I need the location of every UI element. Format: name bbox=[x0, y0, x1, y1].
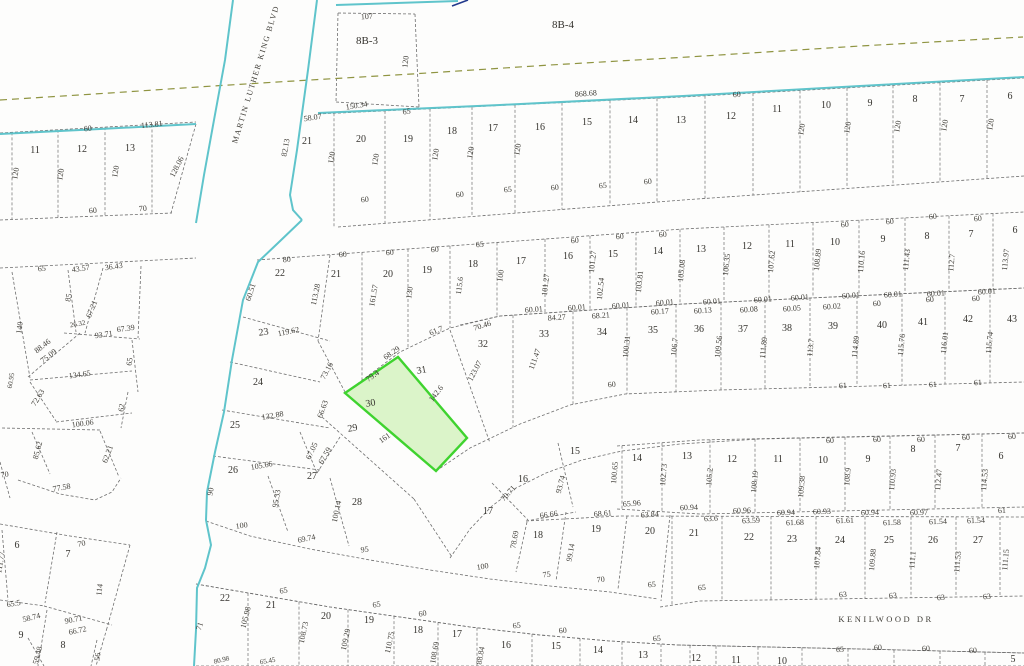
lot-number-label: 8 bbox=[913, 94, 918, 105]
dimension-label: 114.53 bbox=[979, 469, 990, 491]
lot-number-label: 16 bbox=[501, 640, 511, 651]
dimension-label: 63 bbox=[937, 593, 945, 602]
dimension-label: 85.62 bbox=[31, 440, 44, 460]
dimension-label: 63 bbox=[889, 591, 897, 600]
dimension-label: 106.7 bbox=[669, 337, 680, 356]
dimension-label: 109.29 bbox=[339, 628, 352, 651]
dimension-label: 56 bbox=[93, 652, 103, 661]
lot-number-label: 22 bbox=[275, 268, 285, 279]
dimension-label: 61 bbox=[883, 381, 891, 390]
dimension-label: 59.48 bbox=[31, 645, 44, 665]
dimension-label: 73.16 bbox=[319, 361, 335, 381]
parcel-line bbox=[618, 516, 627, 589]
dimension-label: 115.6 bbox=[454, 276, 465, 295]
dimension-label: 108.69 bbox=[428, 641, 441, 664]
dimension-label: 113.97 bbox=[1000, 248, 1011, 271]
dimension-label: 112.47 bbox=[933, 469, 944, 491]
dimension-label: 60.01 bbox=[754, 294, 773, 304]
dimension-label: 105.98 bbox=[239, 606, 253, 630]
dimension-label: 106.35 bbox=[721, 253, 732, 276]
water-line bbox=[196, 0, 233, 223]
parcel-line bbox=[0, 213, 172, 220]
dimension-label: 60 bbox=[840, 220, 849, 230]
lot-number-label: 22 bbox=[220, 593, 230, 604]
dimension-label: 60.01 bbox=[611, 300, 630, 311]
dimension-label: 110.16 bbox=[856, 250, 867, 273]
dimension-label: 66.63 bbox=[315, 399, 330, 419]
dimension-label: 60.01 bbox=[567, 302, 586, 313]
water-line bbox=[318, 77, 1024, 113]
dimension-label: 65 bbox=[125, 357, 135, 366]
dimension-label: 60.13 bbox=[694, 305, 713, 315]
lot-number-label: 27 bbox=[973, 535, 983, 546]
lot-number-label: 9 bbox=[866, 454, 871, 465]
parcel-line bbox=[0, 524, 130, 545]
dimension-label: 120 bbox=[892, 120, 903, 133]
dimension-label: 70.71 bbox=[499, 484, 518, 503]
dimension-label: 66.66 bbox=[539, 509, 558, 520]
dimension-label: 66.72 bbox=[68, 624, 87, 637]
lot-number-label: 37 bbox=[738, 324, 748, 335]
dimension-label: 60 bbox=[962, 433, 970, 442]
lot-number-label: 7 bbox=[960, 94, 965, 105]
dimension-label: 108.19 bbox=[749, 470, 760, 493]
parcel-line bbox=[556, 512, 566, 581]
lot-number-label: 13 bbox=[125, 143, 135, 154]
dimension-label: 60 bbox=[926, 295, 935, 305]
water-line bbox=[290, 0, 317, 220]
dimension-label: 60.94 bbox=[777, 508, 795, 518]
dimension-label: 60 bbox=[360, 195, 369, 205]
dimension-label: 120 bbox=[842, 121, 853, 134]
road-label: KENILWOOD DR bbox=[838, 614, 933, 624]
lot-number-label: 30 bbox=[365, 397, 377, 410]
lot-number-label: 8B-3 bbox=[356, 35, 379, 47]
lot-number-label: 15 bbox=[608, 249, 618, 260]
lot-number-label: 39 bbox=[828, 321, 838, 332]
dimension-label: 68.61 bbox=[593, 508, 612, 519]
dimension-label: 103.81 bbox=[634, 270, 645, 293]
lot-number-label: 13 bbox=[682, 451, 692, 462]
parcel-line bbox=[230, 362, 320, 382]
dimension-label: 60.01 bbox=[791, 292, 810, 302]
dimension-label: 95 bbox=[360, 545, 369, 555]
dimension-label: 142.6 bbox=[427, 384, 445, 404]
lot-number-label: 12 bbox=[742, 241, 752, 252]
parcel-line bbox=[336, 13, 338, 102]
dimension-label: 70.46 bbox=[472, 319, 492, 333]
lot-number-label: 15 bbox=[582, 117, 592, 128]
dimension-label: 100 bbox=[235, 520, 248, 531]
lot-number-label: 12 bbox=[77, 144, 87, 155]
dimension-label: 120 bbox=[326, 151, 337, 164]
lot-number-label: 14 bbox=[593, 645, 603, 656]
dimension-label: 60 bbox=[826, 436, 834, 445]
dimension-label: 115.76 bbox=[896, 333, 907, 356]
dimension-label: 70 bbox=[0, 470, 9, 480]
dimension-label: 109.88 bbox=[867, 548, 878, 571]
lot-number-label: 11 bbox=[731, 655, 741, 666]
water-line bbox=[0, 124, 196, 134]
parcel-map-canvas: MARTIN LUTHER KING BLVDKENILWOOD DR8B-38… bbox=[0, 0, 1024, 666]
lot-number-label: 19 bbox=[422, 265, 432, 276]
dimension-label: 150.34 bbox=[345, 99, 368, 111]
lot-number-label: 8 bbox=[61, 640, 66, 651]
dimension-label: 63.6 bbox=[704, 514, 718, 523]
dimension-label: 61.61 bbox=[836, 516, 854, 526]
dimension-label: 114.89 bbox=[850, 335, 861, 358]
lot-number-label: 10 bbox=[830, 237, 840, 248]
dimension-label: 78.69 bbox=[509, 530, 521, 549]
dimension-label: 60 bbox=[385, 248, 394, 258]
lot-number-label: 9 bbox=[881, 234, 886, 245]
lot-number-label: 40 bbox=[877, 320, 887, 331]
dimension-label: 60.94 bbox=[861, 508, 879, 518]
dimension-label: 100 bbox=[495, 269, 506, 282]
lot-number-label: 22 bbox=[744, 532, 754, 543]
dimension-label: 69.74 bbox=[297, 532, 316, 545]
dimension-label: 100 bbox=[476, 561, 489, 572]
dimension-label: 119.62 bbox=[277, 325, 300, 338]
dimension-label: 63 bbox=[983, 592, 991, 601]
lot-number-label: 11 bbox=[773, 454, 783, 465]
dimension-label: 80.98 bbox=[213, 654, 231, 666]
parcel-line bbox=[196, 584, 678, 645]
dimension-label: 120 bbox=[465, 146, 476, 159]
dimension-label: 61 bbox=[839, 381, 847, 390]
dimension-label: 60 bbox=[917, 435, 925, 444]
lot-number-label: 15 bbox=[570, 446, 580, 457]
dimension-label: 60 bbox=[928, 212, 937, 222]
lot-number-label: 16 bbox=[535, 122, 545, 133]
lot-number-label: 21 bbox=[266, 600, 276, 611]
dimension-label: 60 bbox=[732, 90, 741, 100]
dimension-label: 75 bbox=[542, 570, 551, 580]
dimension-label: 65 bbox=[698, 583, 706, 592]
dimension-label: 93.74 bbox=[554, 474, 567, 494]
lot-number-label: 19 bbox=[591, 524, 601, 535]
lot-number-label: 17 bbox=[516, 256, 526, 267]
lot-number-label: 16 bbox=[518, 474, 528, 485]
dimension-label: 60 bbox=[89, 206, 98, 216]
dimension-label: 130 bbox=[404, 286, 415, 299]
parcel-line bbox=[56, 413, 132, 422]
lot-number-label: 20 bbox=[645, 526, 655, 537]
dimension-label: 112.7 bbox=[946, 253, 957, 272]
dimension-label: 77.58 bbox=[52, 482, 71, 494]
dimension-label: 60.01 bbox=[884, 289, 903, 299]
dimension-label: 60 bbox=[973, 214, 982, 224]
lot-number-label: 7 bbox=[969, 229, 974, 240]
dimension-label: 60 bbox=[972, 294, 981, 304]
dimension-label: 61 bbox=[974, 378, 982, 387]
parcel-line bbox=[107, 545, 130, 628]
dimension-label: 70 bbox=[77, 538, 87, 548]
dimension-label: 88.84 bbox=[475, 646, 487, 665]
lot-number-label: 8 bbox=[911, 444, 916, 455]
lot-number-label: 31 bbox=[416, 364, 428, 377]
dimension-label: 60 bbox=[658, 230, 667, 240]
lot-number-label: 28 bbox=[352, 497, 362, 508]
dimension-label: 95.33 bbox=[271, 489, 283, 508]
lot-number-label: 5 bbox=[1011, 654, 1016, 665]
dimension-label: 115.74 bbox=[984, 331, 995, 354]
lot-number-label: 23 bbox=[787, 534, 797, 545]
dimension-label: 62 bbox=[117, 403, 127, 412]
lot-number-label: 25 bbox=[230, 420, 240, 431]
dimension-label: 108.89 bbox=[812, 248, 823, 271]
dimension-label: 70 bbox=[596, 575, 605, 585]
parcel-line bbox=[2, 428, 100, 430]
lot-number-label: 6 bbox=[1013, 225, 1018, 236]
lot-number-label: 17 bbox=[452, 629, 462, 640]
dimension-label: 108.9 bbox=[842, 467, 853, 486]
dimension-label: 65.5 bbox=[6, 598, 21, 609]
lot-number-label: 10 bbox=[777, 656, 787, 666]
dimension-label: 80 bbox=[282, 255, 291, 265]
lot-number-label: 34 bbox=[597, 327, 607, 338]
dimension-label: 70 bbox=[139, 204, 148, 214]
dimension-label: 26.32 bbox=[69, 319, 86, 330]
dimension-label: 63.59 bbox=[742, 516, 760, 526]
dimension-label: 60 bbox=[83, 124, 92, 134]
dimension-label: 84.27 bbox=[547, 312, 566, 323]
lot-number-label: 24 bbox=[253, 377, 263, 388]
lot-number-label: 38 bbox=[782, 323, 792, 334]
dimension-label: 60 bbox=[874, 643, 882, 652]
lot-number-label: 12 bbox=[727, 454, 737, 465]
lot-number-label: 14 bbox=[632, 453, 642, 464]
lot-number-label: 12 bbox=[691, 653, 701, 664]
dimension-label: 61.58 bbox=[883, 518, 901, 528]
lot-number-label: 11 bbox=[772, 104, 782, 115]
lot-number-label: 13 bbox=[638, 650, 648, 661]
lot-number-label: 26 bbox=[928, 535, 938, 546]
dimension-label: 67.21 bbox=[84, 299, 99, 319]
dimension-label: 60 bbox=[1008, 432, 1016, 441]
lot-number-label: 17 bbox=[483, 506, 493, 517]
lot-number-label: 7 bbox=[66, 549, 71, 560]
lot-number-label: 26 bbox=[228, 465, 238, 476]
lot-number-label: 14 bbox=[628, 115, 638, 126]
lot-number-label: 41 bbox=[918, 317, 928, 328]
dimension-label: 61.54 bbox=[967, 516, 985, 526]
dimension-label: 114 bbox=[94, 583, 104, 596]
dimension-label: 61.54 bbox=[929, 517, 947, 527]
dimension-label: 63 bbox=[839, 590, 847, 599]
lot-number-label: 18 bbox=[413, 625, 423, 636]
dimension-label: 60.02 bbox=[823, 301, 842, 311]
dimension-label: 60 bbox=[873, 435, 881, 444]
dimension-label: 60.96 bbox=[733, 506, 751, 516]
lot-number-label: 8B-4 bbox=[552, 19, 575, 31]
lot-number-label: 18 bbox=[447, 126, 457, 137]
dimension-label: 99.14 bbox=[565, 543, 577, 562]
dimension-label: 60 bbox=[615, 232, 624, 242]
lot-number-label: 35 bbox=[648, 325, 658, 336]
parcel-line bbox=[318, 255, 330, 341]
water-line bbox=[336, 1, 458, 5]
dimension-label: 60 bbox=[643, 177, 652, 187]
dimension-label: 120 bbox=[10, 167, 21, 180]
dimension-label: 113.81 bbox=[140, 119, 163, 130]
dimension-label: 120 bbox=[370, 153, 381, 166]
parcel-line bbox=[0, 122, 196, 133]
dimension-label: 60.05 bbox=[783, 303, 802, 313]
dimension-label: 116.01 bbox=[939, 331, 950, 354]
dimension-label: 109.56 bbox=[713, 335, 724, 358]
dimension-label: 161.57 bbox=[367, 284, 380, 307]
dimension-label: 65.45 bbox=[259, 656, 276, 666]
dimension-label: 65.96 bbox=[622, 498, 641, 509]
dimension-label: 43.57 bbox=[71, 263, 90, 274]
lot-number-label: 11 bbox=[785, 239, 795, 250]
dimension-label: 60 bbox=[430, 245, 439, 255]
lot-number-label: 10 bbox=[821, 100, 831, 111]
lot-number-label: 18 bbox=[533, 530, 543, 541]
lot-number-label: 20 bbox=[356, 134, 366, 145]
dimension-label: 60 bbox=[607, 380, 616, 390]
dimension-label: 85 bbox=[63, 293, 73, 302]
dimension-label: 100.65 bbox=[609, 461, 620, 484]
dimension-label: 111.1 bbox=[907, 551, 917, 569]
dimension-label: 105.08 bbox=[676, 259, 687, 282]
dimension-label: 71 bbox=[194, 621, 205, 631]
dimension-label: 65 bbox=[503, 185, 512, 195]
dimension-label: 100.31 bbox=[621, 335, 632, 358]
lot-number-label: 27 bbox=[307, 471, 317, 482]
lot-number-label: 21 bbox=[331, 269, 341, 280]
dimension-label: 61 bbox=[998, 506, 1006, 515]
dimension-label: 65 bbox=[598, 181, 607, 191]
dimension-label: 120 bbox=[400, 55, 410, 68]
dimension-label: 60.51 bbox=[244, 282, 258, 302]
dimension-label: 60.01 bbox=[842, 290, 861, 300]
dimension-label: 65 bbox=[653, 634, 662, 644]
lot-number-label: 12 bbox=[726, 111, 736, 122]
lot-number-label: 19 bbox=[364, 615, 374, 626]
lot-number-label: 24 bbox=[835, 535, 845, 546]
dimension-label: 128.06 bbox=[168, 155, 186, 179]
dimension-label: 132.88 bbox=[261, 409, 284, 422]
dimension-label: 65 bbox=[279, 585, 288, 595]
dimension-label: 60 bbox=[885, 217, 894, 227]
lot-number-label: 6 bbox=[15, 540, 20, 551]
dimension-label: 102.54 bbox=[595, 277, 606, 300]
dimension-label: 120 bbox=[985, 118, 996, 131]
dimension-label: 60 bbox=[969, 646, 977, 655]
lot-number-label: 25 bbox=[884, 535, 894, 546]
dimension-label: 110.93 bbox=[887, 469, 898, 491]
lot-number-label: 6 bbox=[999, 451, 1004, 462]
lot-number-label: 21 bbox=[302, 136, 312, 147]
dimension-label: 111.15 bbox=[1000, 549, 1011, 571]
parcel-map: MARTIN LUTHER KING BLVDKENILWOOD DR8B-38… bbox=[0, 0, 1024, 666]
lot-number-label: 13 bbox=[676, 115, 686, 126]
dimension-label: 67.39 bbox=[116, 323, 135, 334]
dimension-label: 67.59 bbox=[316, 446, 333, 466]
dimension-label: 93.71 bbox=[94, 329, 113, 340]
dimension-label: 107.62 bbox=[766, 250, 777, 273]
parcel-line bbox=[414, 499, 452, 557]
lot-number-label: 13 bbox=[696, 244, 706, 255]
lot-number-label: 16 bbox=[563, 251, 573, 262]
dimension-label: 60.08 bbox=[740, 304, 759, 314]
dimension-label: 90 bbox=[205, 487, 215, 496]
lot-number-label: 17 bbox=[488, 123, 498, 134]
lot-number-label: 42 bbox=[963, 314, 973, 325]
parcel-line bbox=[138, 266, 141, 338]
dimension-label: 65 bbox=[37, 264, 46, 274]
lot-number-label: 7 bbox=[956, 443, 961, 454]
dimension-label: 72.63 bbox=[29, 388, 46, 408]
dimension-label: 120 bbox=[430, 148, 441, 161]
dimension-label: 58.74 bbox=[22, 611, 42, 624]
dimension-label: 61.68 bbox=[786, 518, 804, 528]
dimension-label: 60 bbox=[922, 644, 930, 653]
parcel-line bbox=[338, 176, 1024, 227]
dimension-label: 102.73 bbox=[658, 463, 669, 486]
parcel-line bbox=[0, 258, 196, 268]
dimension-label: 113.7 bbox=[805, 338, 816, 357]
lot-number-label: 8 bbox=[925, 231, 930, 242]
dimension-label: 101.27 bbox=[540, 273, 551, 296]
lot-number-label: 32 bbox=[478, 339, 488, 350]
dimension-label: 61 bbox=[929, 380, 937, 389]
dimension-label: 60.01 bbox=[978, 286, 997, 296]
lot-number-label: 20 bbox=[383, 269, 393, 280]
dimension-label: 113.28 bbox=[309, 283, 322, 306]
dimension-label: 90.71 bbox=[64, 613, 83, 626]
dimension-label: 100.06 bbox=[71, 418, 94, 430]
survey-dashed-line bbox=[0, 37, 1023, 100]
dimension-label: 120 bbox=[55, 168, 66, 181]
dimension-label: 60 bbox=[558, 626, 567, 636]
dimension-label: 100.14 bbox=[330, 500, 343, 523]
dimension-label: 120 bbox=[796, 123, 807, 136]
dimension-label: 111.43 bbox=[901, 249, 912, 271]
dimension-label: 65 bbox=[402, 106, 411, 116]
lot-number-label: 15 bbox=[551, 641, 561, 652]
dimension-label: 82.13 bbox=[280, 138, 292, 157]
dimension-label: 36.43 bbox=[104, 261, 123, 272]
parcel-line bbox=[338, 13, 415, 14]
dimension-label: 120 bbox=[939, 119, 950, 132]
lot-number-label: 11 bbox=[30, 145, 40, 156]
lot-number-label: 20 bbox=[321, 611, 331, 622]
dimension-label: 60.97 bbox=[910, 508, 928, 518]
dimension-label: 120 bbox=[512, 143, 523, 156]
lot-number-label: 14 bbox=[653, 246, 663, 257]
lot-number-label: 29 bbox=[347, 422, 359, 435]
dimension-label: 134.65 bbox=[68, 369, 91, 381]
lot-number-label: 19 bbox=[403, 134, 413, 145]
dimension-label: 65 bbox=[512, 621, 521, 631]
dimension-label: 60 bbox=[418, 608, 427, 618]
lot-number-label: 10 bbox=[818, 455, 828, 466]
dimension-label: 58.07 bbox=[303, 112, 322, 124]
lot-number-label: 9 bbox=[19, 630, 24, 641]
dimension-label: 111.89 bbox=[758, 337, 769, 359]
road-label: MARTIN LUTHER KING BLVD bbox=[230, 4, 281, 145]
dimension-label: 111.47 bbox=[527, 348, 543, 371]
dimension-label: 109.38 bbox=[796, 475, 807, 498]
dimension-label: 63.84 bbox=[640, 509, 659, 520]
dimension-label: 60 bbox=[338, 250, 347, 260]
dimension-label: 868.68 bbox=[575, 88, 598, 99]
dimension-label: 60.17 bbox=[651, 306, 670, 316]
dimension-label: 65 bbox=[836, 645, 844, 654]
